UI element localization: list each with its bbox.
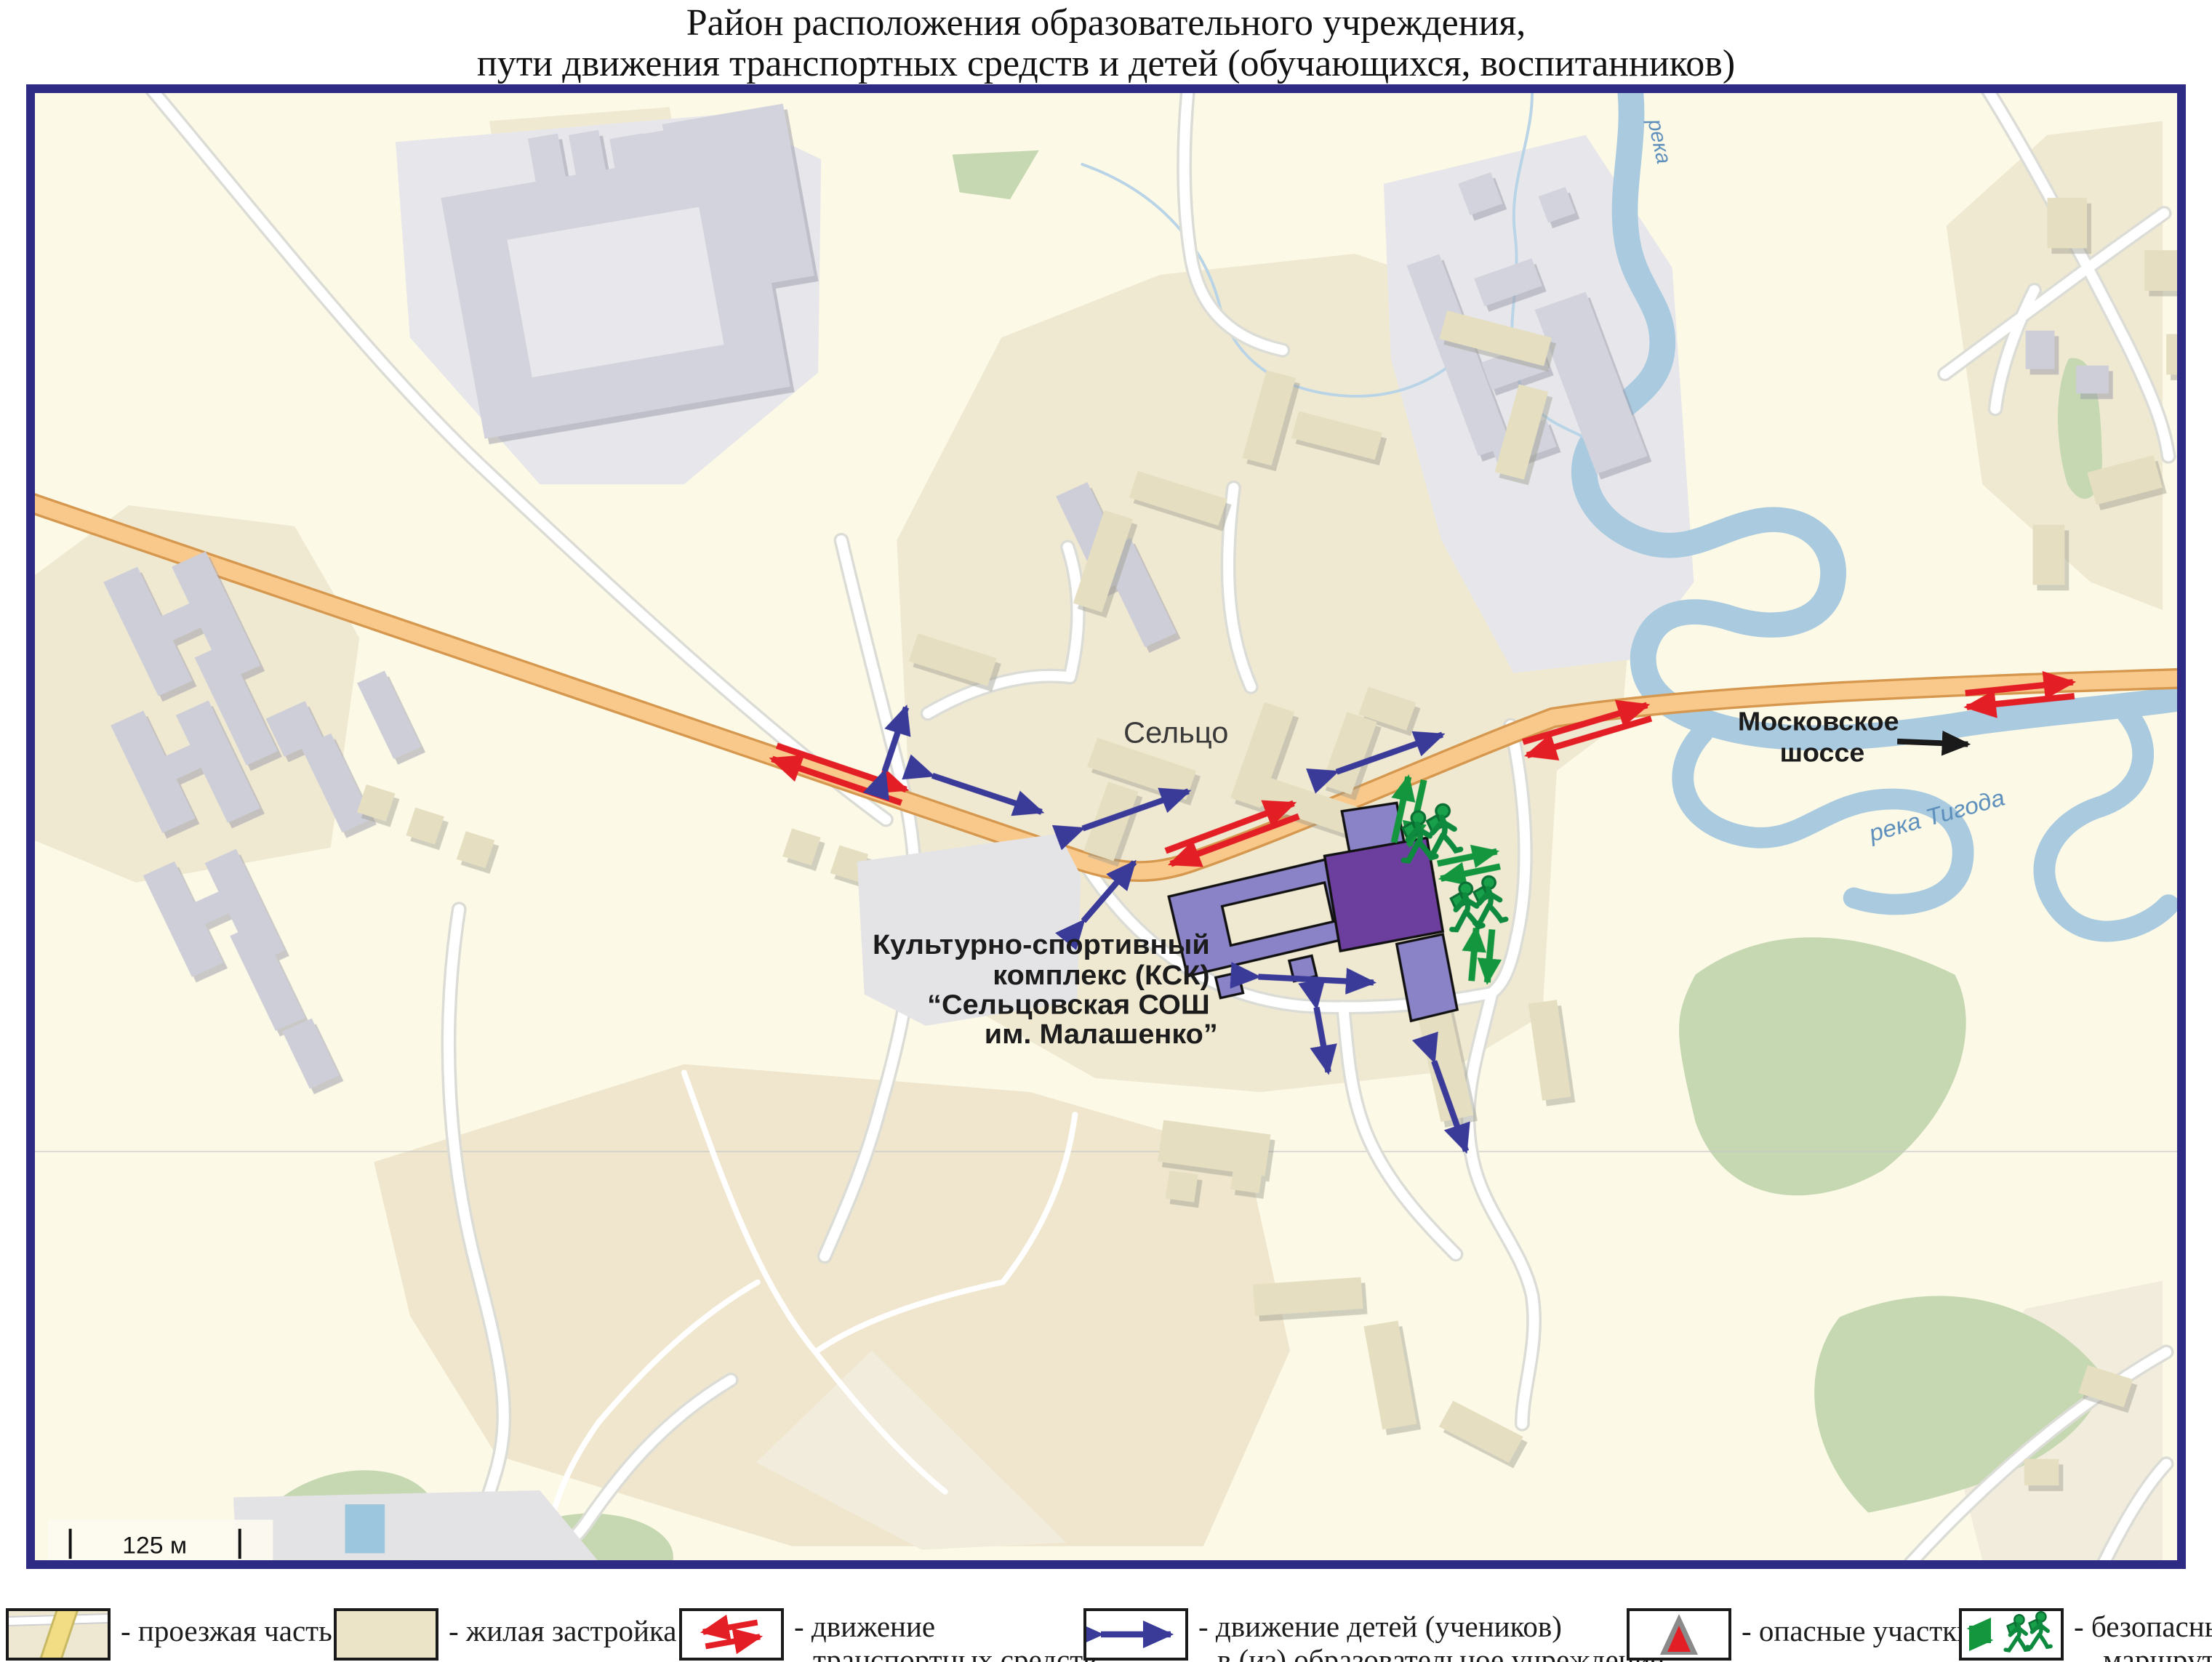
title-line1: Район расположения образовательного учре… (0, 3, 2212, 44)
legend-label-residential: - жилая застройка (449, 1608, 676, 1647)
legend-label-roadway: - проезжая часть (121, 1608, 332, 1647)
pool (345, 1504, 385, 1553)
legend-item-safe-route: - безопасный маршрут (1959, 1608, 2212, 1662)
scale-bar: 125 м (48, 1520, 273, 1560)
residential-sample-icon (334, 1608, 438, 1661)
page: Район расположения образовательного учре… (0, 0, 2212, 1662)
legend-label-danger: - опасные участки (1742, 1608, 1973, 1647)
road-sample-icon (6, 1608, 111, 1661)
title-line2: пути движения транспортных средств и дет… (0, 44, 2212, 84)
map-canvas: Сельцо Московское шоссе река Тигода река… (35, 93, 2177, 1560)
scale-label: 125 м (122, 1533, 187, 1559)
children-arrow-icon (1083, 1608, 1188, 1661)
legend-item-residential: - жилая застройка (334, 1608, 676, 1661)
danger-triangle-icon (1627, 1608, 1731, 1661)
legend-label-children-movement: - движение детей (учеников) в (из) образ… (1198, 1608, 1664, 1662)
safe-route-icon (1959, 1608, 2064, 1661)
legend-item-danger: - опасные участки (1627, 1608, 1973, 1661)
highway-direction-arrow (1897, 742, 1968, 744)
legend-label-vehicle-movement: - движение транспортных средств (794, 1608, 1097, 1662)
legend-item-vehicle-movement: - движение транспортных средств (679, 1608, 1097, 1662)
legend-label-safe-route: - безопасный маршрут (2074, 1608, 2212, 1662)
vehicle-arrows-icon (679, 1608, 784, 1661)
legend-item-roadway: - проезжая часть (6, 1608, 332, 1661)
page-title: Район расположения образовательного учре… (0, 3, 2212, 84)
legend-item-children-movement: - движение детей (учеников) в (из) образ… (1083, 1608, 1664, 1662)
settlement-label: Сельцо (1123, 716, 1228, 749)
map-frame: Сельцо Московское шоссе река Тигода река… (26, 84, 2186, 1569)
